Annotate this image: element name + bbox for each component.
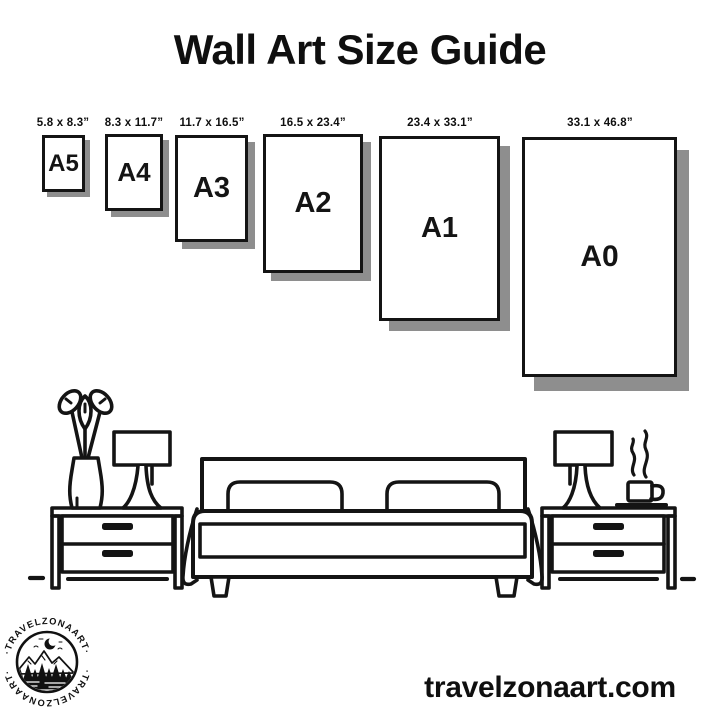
drawer-handle [593,523,624,530]
lamp-shade [114,432,170,465]
flower-vase [55,387,116,508]
drawer-handle [593,550,624,557]
steam-icon [644,431,647,477]
lamp-shade [555,432,612,465]
travelzonaart-logo: ·TRAVELZONAART· ·TRAVELZONAART· [1,616,93,708]
bed [183,459,542,596]
mug-body [628,482,652,501]
right-table-lamp [555,432,612,508]
left-nightstand [52,508,182,588]
drawer-handle [102,550,133,557]
bed-foot [211,577,229,596]
bedroom-scene-illustration [0,0,720,720]
coffee-cup [617,431,666,505]
wall-art-size-guide-poster: { "title": "Wall Art Size Guide", "sizes… [0,0,720,720]
website-url: travelzonaart.com [424,671,676,705]
left-table-lamp [114,432,170,508]
drawer-handle [102,523,133,530]
right-nightstand [542,508,675,588]
mattress [193,511,532,577]
vase-icon [70,458,103,508]
steam-icon [632,439,635,475]
bed-foot [496,577,517,596]
